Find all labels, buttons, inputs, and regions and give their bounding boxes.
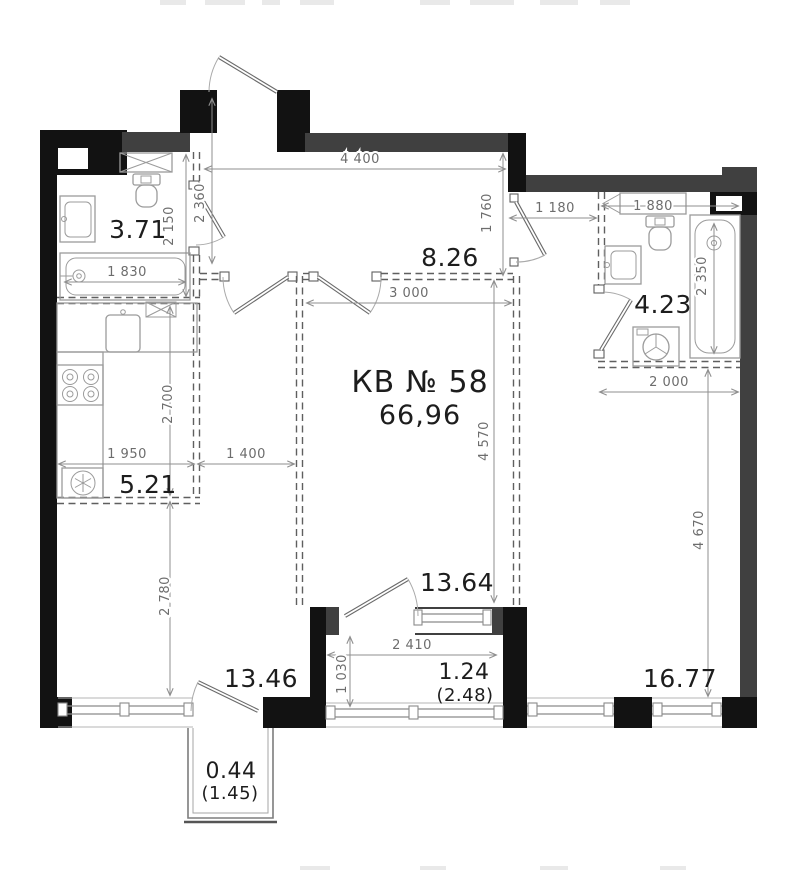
room-label-loggia: 1.24 (439, 660, 490, 685)
dim-label-1880: 1 880 (633, 199, 673, 214)
loggia-pier-left (310, 607, 326, 728)
pier-bottom-2 (614, 697, 652, 728)
dim-2700: 2 700 (161, 307, 176, 495)
toilet-icon-2 (646, 216, 674, 250)
room-label-hall: 8.26 (421, 243, 479, 272)
window-room-left (58, 698, 193, 727)
dim-label-2700: 2 700 (161, 384, 176, 424)
room-label-loggia-full: (2.48) (436, 685, 493, 706)
room-label-bathroom-left: 3.71 (109, 215, 167, 244)
dim-label-2000: 2 000 (649, 375, 689, 390)
floor-plan: 4 400 2 360 2 150 1 830 1 760 1 180 1 88… (0, 0, 800, 870)
wall-top-bathroom (122, 132, 190, 152)
dim-label-1180: 1 180 (535, 201, 575, 216)
apartment-title: КВ № 58 66,96 (351, 365, 488, 431)
dim-1830: 1 830 (65, 265, 185, 282)
shaft-niche (716, 196, 742, 211)
dim-1950: 1 950 (59, 447, 194, 464)
wall-left (40, 130, 57, 728)
window-loggia-bottom (326, 703, 503, 727)
dim-label-4670: 4 670 (692, 510, 707, 550)
apartment-number: КВ № 58 (351, 365, 488, 400)
dim-label-2410: 2 410 (392, 638, 432, 653)
wall-pier-hall (508, 133, 526, 192)
room-label-room-center: 13.64 (420, 568, 494, 597)
wall-right (740, 179, 757, 728)
dim-label-1760: 1 760 (480, 193, 495, 233)
room-label-room-left: 13.46 (224, 664, 298, 693)
partition-hall-south (200, 272, 513, 281)
door-bathroom-right (601, 292, 631, 350)
dim-4670: 4 670 (692, 370, 708, 696)
fridge-icon (62, 468, 103, 498)
window-room-right-2 (652, 698, 722, 727)
dim-2410: 2 410 (328, 638, 496, 655)
pier-bottom-right-corner (722, 697, 757, 728)
door-room-center (318, 277, 381, 313)
dim-label-4400: 4 400 (340, 152, 380, 167)
stove-icon (57, 365, 103, 405)
dim-label-1830: 1 830 (107, 265, 147, 280)
dim-label-3000: 3 000 (389, 286, 429, 301)
loggia-pier-right (503, 607, 527, 728)
loggia-window-opening (414, 609, 492, 633)
washing-machine-icon-2 (633, 327, 679, 366)
window-room-right-1 (527, 698, 614, 727)
wall-step-top-right (722, 167, 757, 179)
kitchen-counter-column (57, 352, 103, 498)
dim-label-2360: 2 360 (193, 183, 208, 223)
apartment-total-area: 66,96 (379, 400, 461, 431)
washing-machine-icon (120, 153, 172, 172)
kitchen-faucet (121, 310, 126, 315)
dim-4400: 4 400 (205, 152, 505, 169)
room-label-balcony: 0.44 (206, 759, 257, 784)
pier-bottom-1 (263, 697, 312, 728)
vent-box-icon (146, 302, 176, 317)
room-label-bathroom-right: 4.23 (634, 290, 692, 319)
room-label-room-right: 16.77 (643, 664, 717, 693)
dim-4570: 4 570 (477, 281, 494, 602)
dim-label-1030: 1 030 (335, 654, 350, 694)
entrance-jamb-left (180, 90, 217, 133)
dim-1760: 1 760 (480, 154, 503, 275)
room-label-kitchen: 5.21 (119, 470, 177, 499)
room-label-balcony-full: (1.45) (201, 783, 258, 804)
kitchen-sink-icon (106, 315, 140, 352)
door-room-left (223, 277, 288, 313)
partition-room-center-left (297, 276, 303, 607)
dim-label-4570: 4 570 (477, 421, 492, 461)
partition-room-center-right (514, 276, 520, 607)
fixtures-bathroom-right (603, 193, 740, 366)
wall-top-hall (305, 133, 508, 152)
dim-label-1400: 1 400 (226, 447, 266, 462)
dim-label-2780: 2 780 (158, 576, 173, 616)
dim-1400: 1 400 (198, 447, 294, 464)
wall-niche-top-left (58, 148, 88, 169)
dim-2000: 2 000 (600, 375, 738, 392)
entrance-door (209, 57, 277, 92)
fixtures-kitchen (57, 302, 197, 498)
dim-label-2350: 2 350 (695, 256, 710, 296)
floor-plan-drawing: 4 400 2 360 2 150 1 830 1 760 1 180 1 88… (0, 0, 800, 870)
sink-icon (60, 196, 95, 242)
dim-2780: 2 780 (158, 502, 173, 695)
cropped-edge-artifacts (160, 0, 686, 870)
dim-label-1950: 1 950 (107, 447, 147, 462)
sink-icon-2 (605, 246, 642, 284)
dim-1030: 1 030 (335, 637, 350, 706)
toilet-icon (133, 174, 160, 207)
